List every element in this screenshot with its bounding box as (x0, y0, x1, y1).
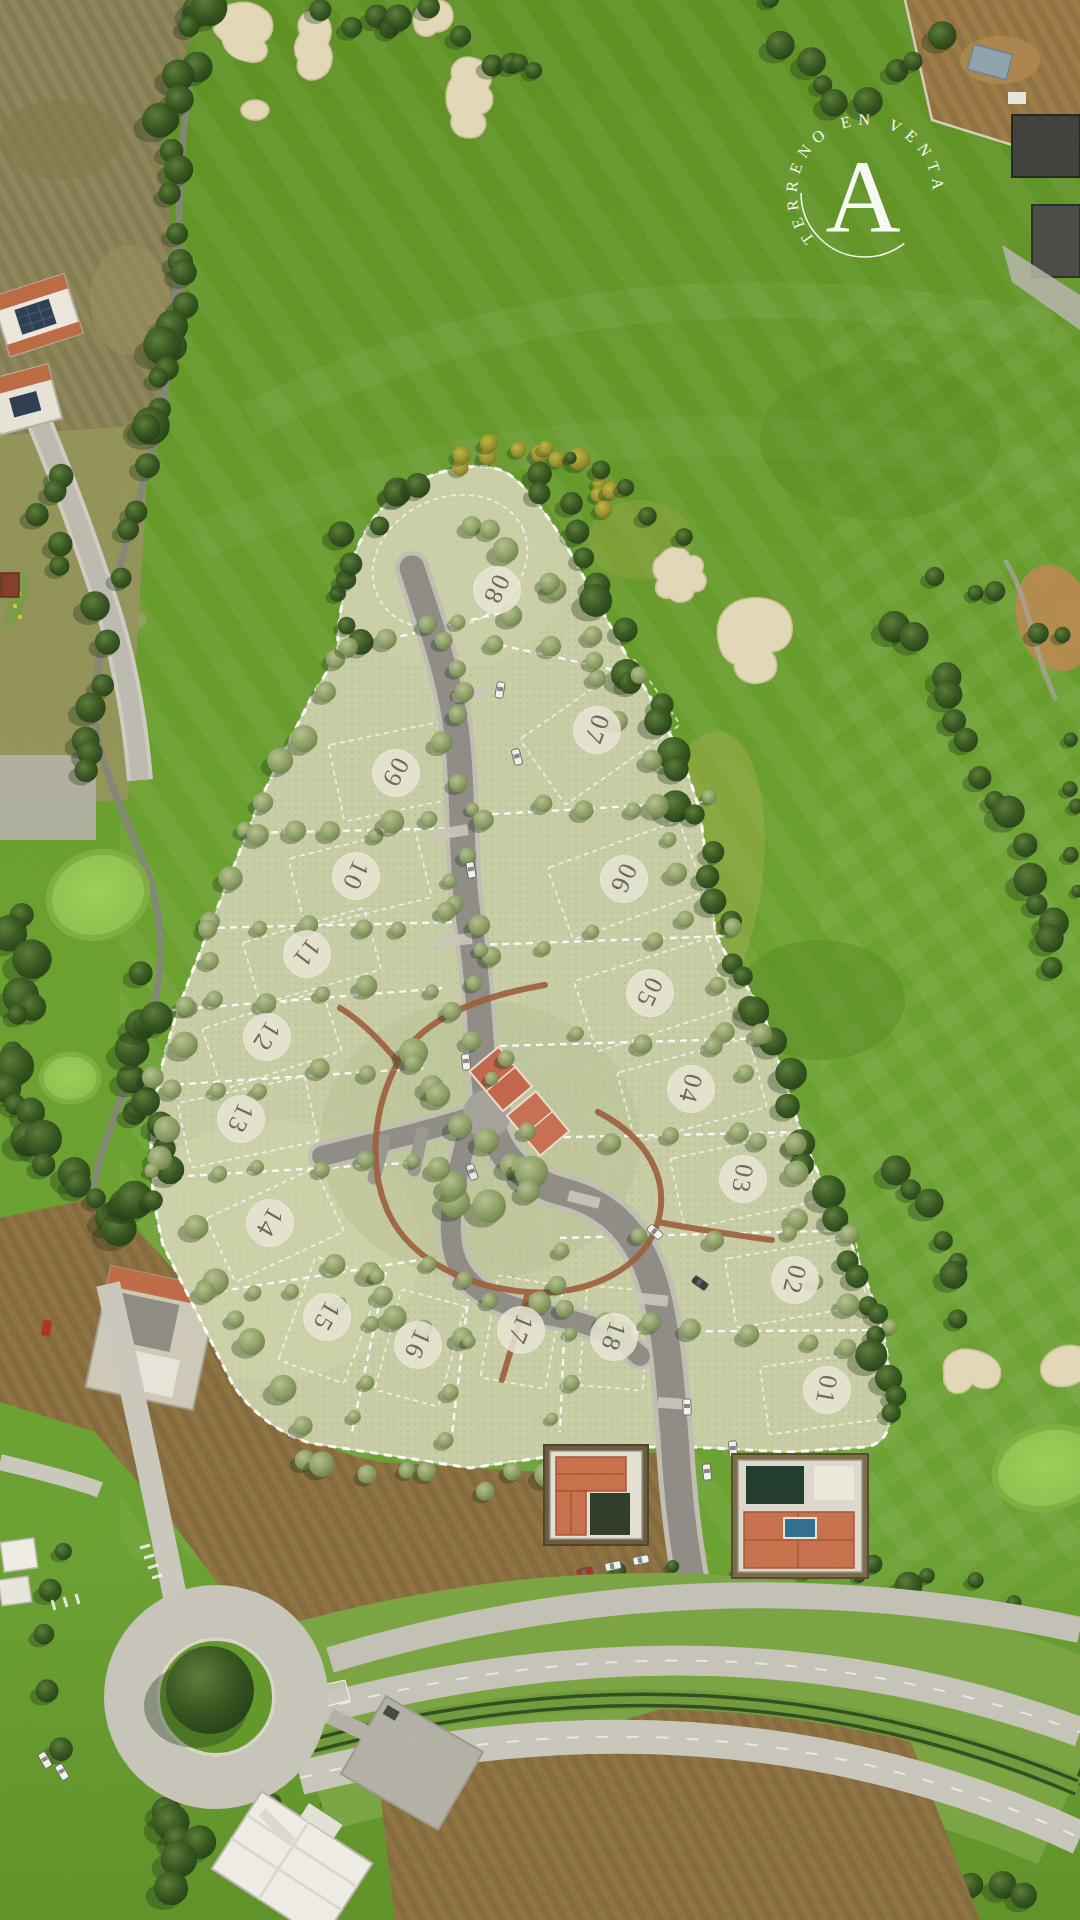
aerial-masterplan-image: 010203040506070809101112131415161718 TER… (0, 0, 1080, 1920)
photo-grain (0, 0, 1080, 1920)
